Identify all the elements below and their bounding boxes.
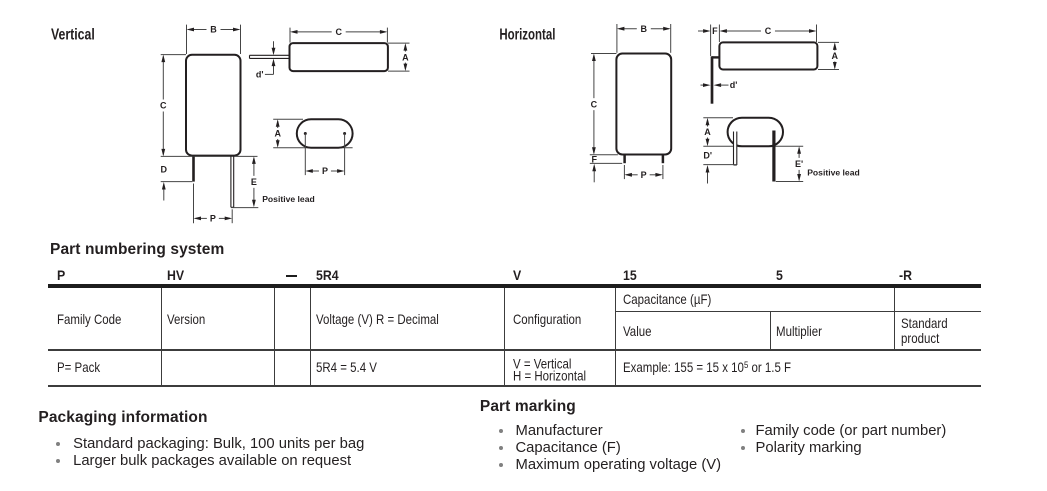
svg-text:A: A bbox=[274, 129, 281, 139]
svg-text:D: D bbox=[161, 164, 168, 174]
svg-text:F: F bbox=[712, 26, 718, 36]
svg-text:A: A bbox=[704, 127, 711, 137]
svg-text:B: B bbox=[641, 24, 648, 34]
svg-text:P: P bbox=[322, 166, 328, 176]
svg-text:Positive lead: Positive lead bbox=[262, 194, 315, 204]
svg-text:C: C bbox=[591, 99, 598, 109]
svg-text:Vertical: Vertical bbox=[51, 27, 95, 44]
svg-text:D': D' bbox=[703, 150, 712, 160]
svg-text:A: A bbox=[402, 52, 409, 62]
svg-text:B: B bbox=[210, 25, 217, 35]
svg-text:P: P bbox=[641, 170, 647, 180]
svg-text:E': E' bbox=[795, 159, 803, 169]
svg-text:Horizontal: Horizontal bbox=[499, 27, 555, 44]
svg-text:C: C bbox=[160, 101, 167, 111]
svg-text:A: A bbox=[832, 51, 839, 61]
svg-text:P: P bbox=[210, 214, 216, 224]
svg-text:E: E bbox=[251, 177, 257, 187]
svg-text:C: C bbox=[335, 27, 342, 37]
svg-text:d': d' bbox=[256, 69, 264, 79]
svg-text:d': d' bbox=[730, 80, 738, 90]
svg-text:C: C bbox=[765, 26, 772, 36]
svg-text:F: F bbox=[591, 154, 597, 164]
svg-text:Positive lead: Positive lead bbox=[807, 167, 860, 177]
